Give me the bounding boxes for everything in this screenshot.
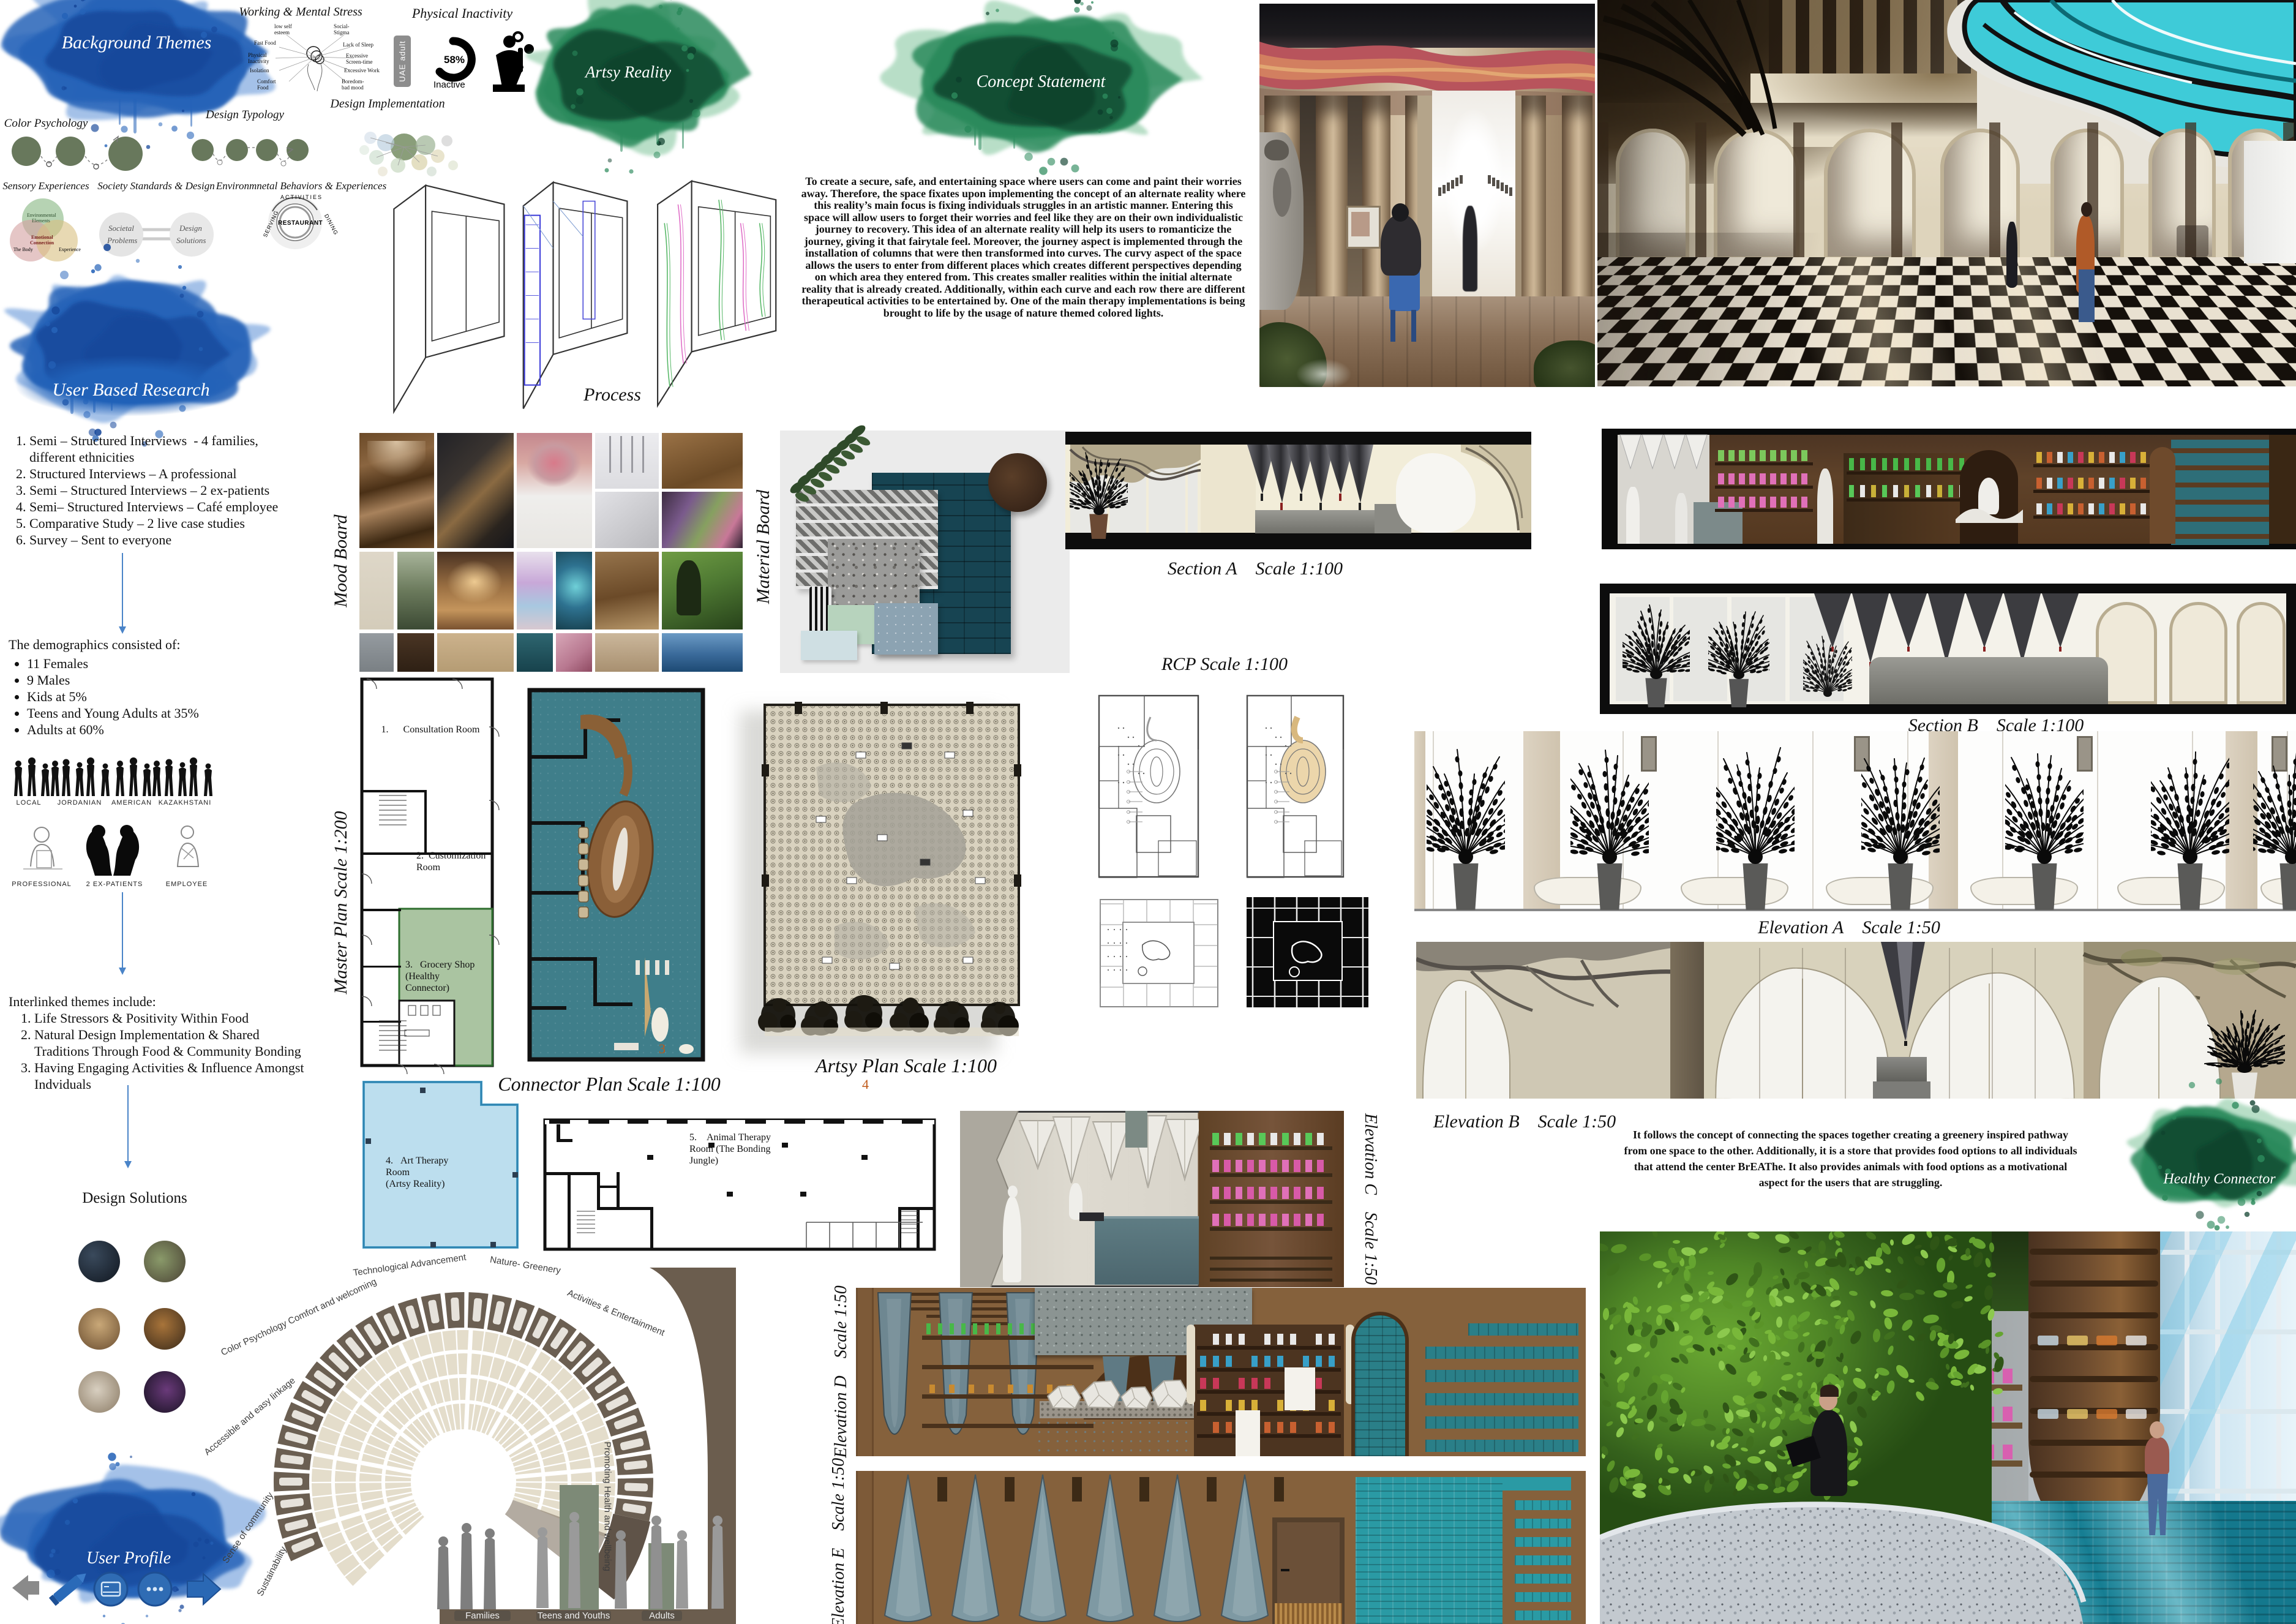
svg-text:Elements: Elements (32, 218, 50, 224)
svg-text:RESTAURANT: RESTAURANT (278, 220, 323, 227)
svg-text:DINING: DINING (323, 213, 339, 236)
svg-text:Problems: Problems (107, 236, 137, 245)
svg-text:Environmental: Environmental (27, 212, 56, 218)
svg-text:Experience: Experience (59, 247, 81, 252)
svg-text:Inactive: Inactive (433, 80, 465, 90)
svg-text:ACTIVITIES: ACTIVITIES (280, 194, 323, 200)
svg-text:Solutions: Solutions (176, 236, 206, 245)
svg-text:The Body: The Body (13, 247, 33, 252)
svg-text:Design: Design (179, 224, 202, 233)
svg-text:Emotional: Emotional (31, 235, 53, 240)
svg-text:Connection: Connection (30, 240, 54, 246)
svg-text:58%: 58% (444, 54, 465, 66)
svg-text:Societal: Societal (108, 224, 134, 233)
